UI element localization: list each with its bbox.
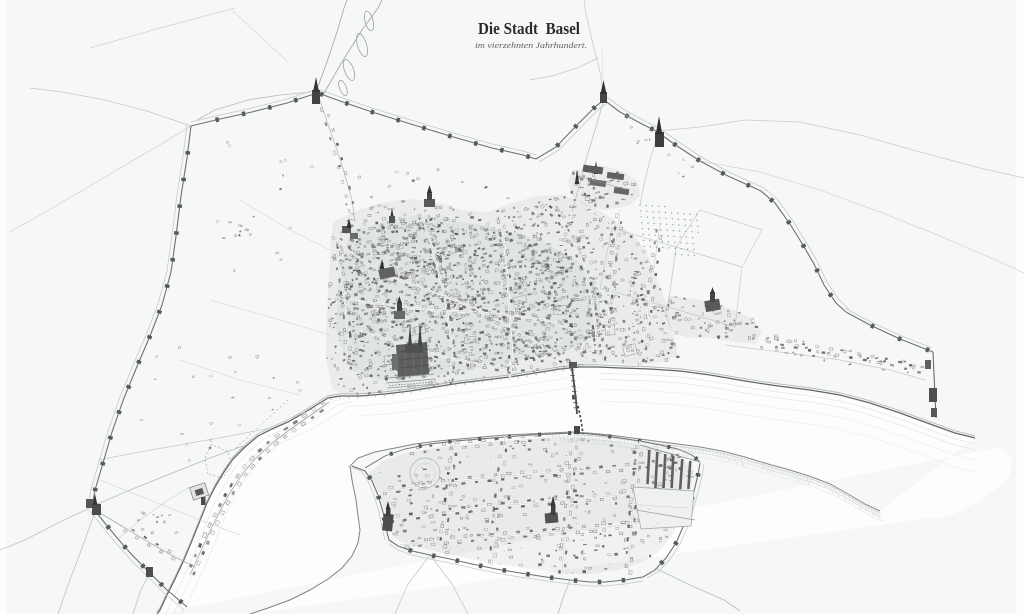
svg-text:Die Stadt Basel: Die Stadt Basel [478,19,580,38]
svg-text:im vierzehnten Jahrhundert.: im vierzehnten Jahrhundert. [475,40,587,50]
